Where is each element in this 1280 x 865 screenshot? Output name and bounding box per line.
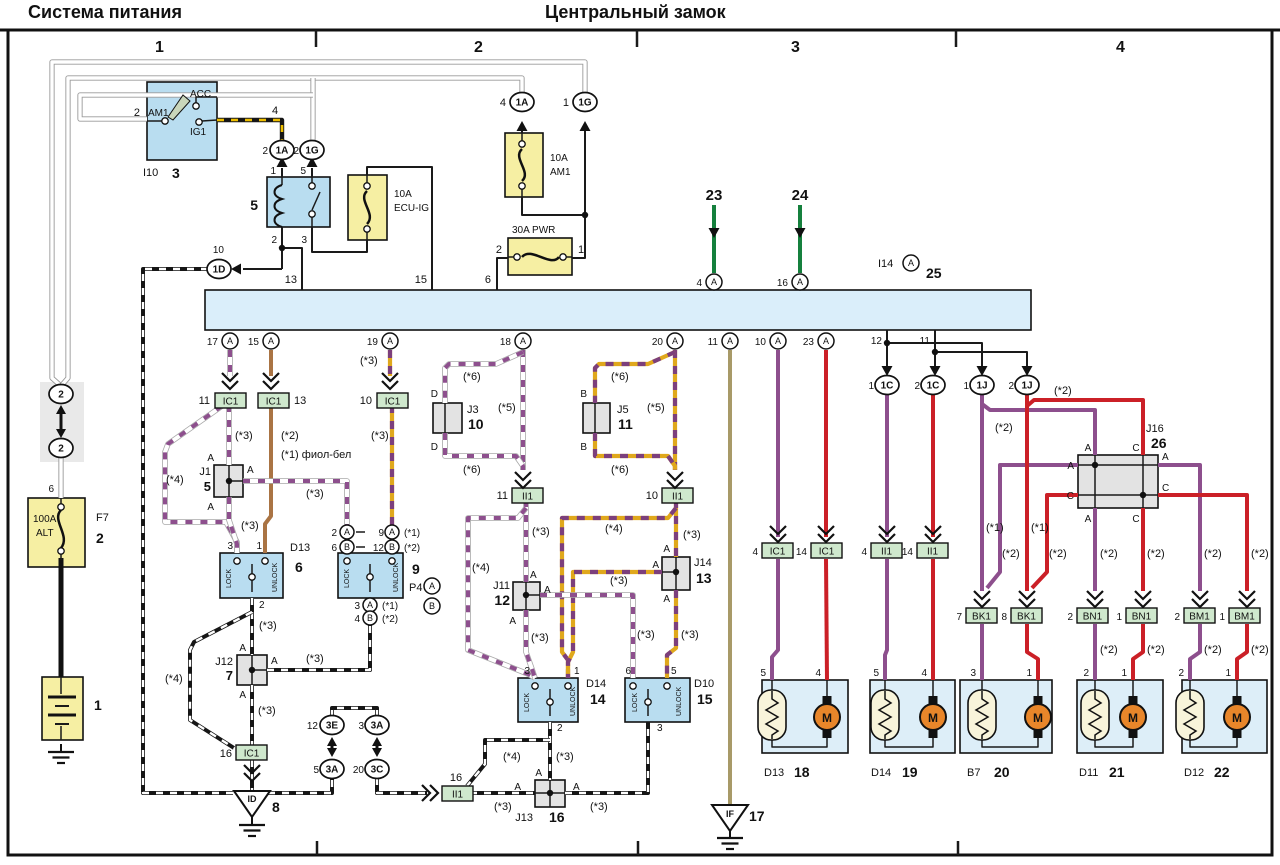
terminal [532, 683, 538, 689]
diagram-label: J5 [617, 404, 629, 416]
chevron-mark [974, 591, 990, 599]
diagram-label: (*3) [532, 526, 550, 538]
diagram-label: (*2) [1147, 548, 1165, 560]
diagram-label: 18 [500, 337, 512, 348]
terminal [364, 226, 370, 232]
terminal [249, 574, 255, 580]
diagram-label: 20 [652, 337, 664, 348]
diagram-label: 1 [1026, 668, 1032, 679]
diagram-label: 13 [696, 570, 712, 586]
oval-connector-label: 3A [326, 765, 339, 776]
circled-letter-label: A [908, 258, 914, 268]
diagram-label: A [207, 453, 214, 464]
wiring-diagram: IC1IC1IC1II1II1IC1II1IC1IC1II1II1BK1BK1B… [0, 0, 1280, 865]
diagram-label: (*2) [382, 614, 398, 625]
diagram-label: 2 [271, 235, 277, 246]
diagram-label: (*2) [1054, 385, 1072, 397]
chevron-mark [667, 472, 683, 480]
diagram-label: 5 [671, 666, 677, 677]
diagram-label: D11 [1079, 767, 1098, 779]
diagram-label: (*2) [281, 430, 299, 442]
diagram-label: (*3) [590, 801, 608, 813]
connector-label: BM1 [1234, 612, 1255, 623]
wire-wp [243, 481, 347, 524]
diagram-label: 11 [199, 395, 210, 407]
diagram-label: P4 [409, 582, 422, 594]
circled-letter-label: A [520, 336, 526, 346]
diagram-label: 4 [272, 105, 278, 117]
terminal [547, 699, 553, 705]
diagram-label: B7 [967, 767, 980, 779]
wire-wp [243, 481, 347, 524]
diagram-label: 4 [815, 668, 821, 679]
circled-letter-label: A [227, 336, 233, 346]
terminal [196, 119, 202, 125]
oval-connector-label: 3E [326, 721, 339, 732]
diagram-label: 5 [250, 197, 258, 213]
circled-letter-label: A [344, 527, 350, 537]
diagram-label: (*1) [382, 601, 398, 612]
motor-label: M [1128, 711, 1138, 725]
arrowhead [517, 121, 528, 131]
diagram-label: 1 [574, 666, 580, 677]
diagram-label: 3 [354, 601, 360, 612]
diagram-label: (*4) [605, 523, 623, 535]
junction-J5 [583, 403, 610, 433]
wire-bw [377, 778, 427, 793]
arrowhead [930, 366, 941, 376]
diagram-label: 23 [803, 337, 815, 348]
chevron-mark [1192, 591, 1208, 599]
circled-letter-label: A [389, 527, 395, 537]
diagram-label: (*2) [404, 543, 420, 554]
diagram-label: 3 [970, 668, 976, 679]
connector-label: BK1 [1017, 612, 1036, 623]
diagram-label: A [1067, 461, 1074, 472]
terminal [58, 548, 64, 554]
diagram-label: 11 [618, 416, 633, 432]
circled-letter-label: A [429, 581, 435, 591]
circled-letter-label: B [389, 542, 395, 552]
junction-dot [673, 569, 679, 575]
diagram-label: 1 [868, 381, 874, 392]
wire-wp [445, 433, 523, 470]
diagram-label: 3 [227, 541, 233, 552]
diagram-label: A [544, 585, 551, 596]
diagram-label: 21 [1109, 764, 1125, 780]
diagram-label: (*5) [498, 402, 516, 414]
diagram-label: 15 [415, 274, 427, 286]
diagram-label: F7 [96, 512, 109, 524]
diagram-label: 4 [696, 278, 702, 289]
diagram-label: 7 [226, 668, 233, 683]
junction-J3 [433, 403, 462, 433]
diagram-label: A [271, 656, 278, 667]
diagram-label: 16 [777, 278, 789, 289]
diagram-label: D12 [1184, 767, 1204, 779]
diagram-label: D14 [586, 678, 606, 690]
junction-dot [547, 790, 553, 796]
diagram-label: 2 [293, 146, 299, 157]
diagram-label: D13 [290, 542, 310, 554]
oval-connector-label: 1D [213, 265, 226, 276]
diagram-label: 10 [360, 395, 372, 407]
diagram-label: LOCK [524, 693, 531, 712]
diagram-label: 1 [256, 541, 262, 552]
diagram-label: C [1162, 483, 1169, 494]
diagram-label: A [652, 560, 659, 571]
terminal [309, 183, 315, 189]
diagram-label: 12 [871, 336, 883, 347]
diagram-label: (*2) [1100, 548, 1118, 560]
diagram-label: 1 [1121, 668, 1127, 679]
wire-bw [467, 740, 550, 786]
wire-py [568, 572, 662, 678]
diagram-label: D14 [871, 767, 891, 779]
oval-connector-label: 1J [1021, 381, 1032, 392]
diagram-label: 11 [920, 336, 931, 347]
wire-red [826, 559, 827, 680]
diagram-label: 30A PWR [512, 225, 555, 236]
diagram-label: 5 [760, 668, 766, 679]
oval-connector-label: 1G [305, 146, 319, 157]
diagram-label: 12 [307, 721, 319, 732]
arrowhead [795, 228, 806, 238]
circled-letter-label: A [797, 277, 803, 287]
diagram-label: 8 [1001, 612, 1007, 623]
connector-label: BN1 [1083, 612, 1103, 623]
diagram-label: 9 [412, 561, 420, 577]
diagram-label: 3 [524, 666, 530, 677]
diagram-label: 16 [549, 809, 565, 825]
diagram-label: 8 [272, 799, 280, 815]
chevron-mark [515, 472, 531, 480]
diagram-label: (*4) [165, 673, 183, 685]
diagram-label: A [530, 570, 537, 581]
wire-wp [445, 433, 523, 470]
connector-label: IC1 [819, 547, 835, 558]
wire-bw [467, 740, 550, 786]
diagram-label: A [239, 690, 246, 701]
arrowhead [709, 228, 720, 238]
double-arrow-up [372, 737, 382, 746]
diagram-label: A [247, 465, 254, 476]
diagram-label: A [1085, 443, 1092, 454]
diagram-label: LOCK [226, 569, 233, 588]
diagram-label: 10 [755, 337, 767, 348]
motor-label: M [1033, 711, 1043, 725]
diagram-label: (*1) [986, 522, 1004, 534]
terminal [367, 574, 373, 580]
terminal [630, 683, 636, 689]
diagram-label: C [1067, 491, 1074, 502]
diagram-label: 2 [1067, 612, 1073, 623]
diagram-label: A [207, 502, 214, 513]
diagram-page: Система питания Центральный замок IC1IC1… [0, 0, 1280, 865]
diagram-label: 6 [625, 666, 631, 677]
wire-red [1032, 495, 1078, 588]
diagram-label: 2 [1083, 668, 1089, 679]
wire-bk15 [202, 120, 217, 121]
diagram-label: 4 [354, 614, 360, 625]
diagram-label: A [1162, 452, 1169, 463]
diagram-label: 13 [285, 274, 297, 286]
diagram-label: A [535, 768, 542, 779]
oval-connector-label: 1G [578, 98, 592, 109]
diagram-label: IF [726, 809, 735, 819]
chevron-mark [1239, 591, 1255, 599]
diagram-label: 2 [1008, 381, 1014, 392]
wire-by [217, 120, 282, 142]
diagram-label: D [431, 389, 438, 400]
terminal [344, 558, 350, 564]
diagram-label: J3 [467, 404, 479, 416]
oval-connector-label: 1C [927, 381, 940, 392]
diagram-label: 10 [213, 245, 225, 256]
diagram-label: 7 [956, 612, 962, 623]
diagram-label: (*2) [1204, 644, 1222, 656]
diagram-label: 2 [96, 530, 104, 546]
connector-label: IC1 [266, 397, 282, 408]
diagram-label: (*4) [166, 474, 184, 486]
diagram-label: 17 [207, 337, 219, 348]
connector-label: II1 [881, 547, 893, 558]
junction-dot [932, 349, 938, 355]
terminal [664, 683, 670, 689]
diagram-label: 2 [134, 107, 140, 119]
diagram-label: 19 [902, 764, 918, 780]
double-arrow-up [327, 737, 337, 746]
oval-connector-label: 1A [516, 98, 529, 109]
oval-connector-label: 1C [881, 381, 894, 392]
diagram-label: UNLOCK [676, 686, 683, 716]
diagram-label: UNLOCK [272, 562, 279, 592]
diagram-label: 2 [557, 723, 563, 734]
diagram-label: 26 [1151, 435, 1167, 451]
diagram-label: (*1) фиол-бел [281, 449, 351, 461]
connector-label: BK1 [972, 612, 991, 623]
wire-pur [1190, 624, 1200, 680]
connector-label: IC1 [385, 397, 401, 408]
battery-1 [42, 677, 83, 740]
oval-connector-label: 3A [371, 721, 384, 732]
wire-bw [268, 778, 332, 793]
diagram-label: (*3) [610, 575, 628, 587]
wire-wh [61, 78, 522, 386]
connector-label: II1 [452, 790, 464, 801]
wire-bw [332, 708, 377, 717]
diagram-label: A [239, 643, 246, 654]
diagram-label: 2 [259, 600, 265, 611]
diagram-label: 23 [706, 187, 723, 204]
diagram-label: (*3) [683, 529, 701, 541]
oval-connector-label: 2 [58, 444, 64, 455]
diagram-label: (*3) [637, 629, 655, 641]
terminal [514, 254, 520, 260]
diagram-label: UNLOCK [393, 562, 400, 592]
wire-py [595, 433, 675, 470]
diagram-label: (*3) [360, 355, 378, 367]
diagram-label: 10A [550, 153, 568, 164]
arrowhead [231, 264, 241, 275]
wire-bk [497, 258, 508, 290]
diagram-label: 4 [752, 547, 758, 558]
diagram-label: 15 [248, 337, 260, 348]
diagram-label: LOCK [632, 693, 639, 712]
diagram-label: (*6) [463, 464, 481, 476]
diagram-label: 20 [994, 764, 1010, 780]
circled-letter-label: A [727, 336, 733, 346]
junction-dot [523, 592, 529, 598]
diagram-label: 5 [300, 166, 306, 177]
diagram-label: UNLOCK [570, 686, 577, 716]
diagram-label: (*6) [611, 464, 629, 476]
connector-label: IC1 [223, 397, 239, 408]
diagram-label: 9 [378, 528, 384, 539]
diagram-label: 3 [791, 39, 800, 56]
diagram-label: ID [248, 794, 258, 804]
wire-bk [572, 123, 585, 258]
diagram-label: (*2) [1049, 548, 1067, 560]
circled-letter-label: A [268, 336, 274, 346]
terminal [645, 699, 651, 705]
diagram-label: 19 [367, 337, 379, 348]
diagram-label: D10 [694, 678, 714, 690]
diagram-label: (*6) [611, 371, 629, 383]
diagram-label: 22 [1214, 764, 1230, 780]
motor-label: M [822, 711, 832, 725]
wire-bw [377, 778, 427, 793]
diagram-label: A [1085, 514, 1092, 525]
diagram-label: 10 [646, 490, 658, 502]
diagram-label: AM1 [148, 108, 169, 119]
diagram-label: (*2) [1147, 644, 1165, 656]
circled-letter-label: A [367, 600, 373, 610]
diagram-label: 10 [468, 416, 484, 432]
motor-cap [823, 730, 832, 738]
terminal [234, 558, 240, 564]
junction-dot [1140, 492, 1146, 498]
diagram-label: 12 [373, 543, 385, 554]
diagram-label: 6 [485, 274, 491, 286]
diagram-label: J14 [694, 557, 712, 569]
diagram-label: (*3) [241, 520, 259, 532]
motor-cap [1129, 696, 1138, 704]
diagram-label: AM1 [550, 167, 571, 178]
diagram-label: 2 [1174, 612, 1180, 623]
diagram-label: (*2) [995, 422, 1013, 434]
wire-py [595, 352, 675, 403]
ecu-bus [205, 290, 1031, 330]
diagram-label: J11 [493, 580, 510, 592]
diagram-label: 25 [926, 265, 942, 281]
diagram-label: 3 [358, 721, 364, 732]
diagram-label: J1 [199, 466, 211, 478]
diagram-label: B [580, 442, 587, 453]
circled-letter-label: A [775, 336, 781, 346]
connector-label: IC1 [244, 749, 260, 760]
diagram-label: 24 [792, 187, 809, 204]
diagram-label: 2 [1178, 668, 1184, 679]
circled-letter-label: A [672, 336, 678, 346]
chevron-mark [1087, 591, 1103, 599]
diagram-label: 15 [697, 691, 713, 707]
wire-pur [772, 559, 778, 680]
wire-wp [243, 481, 347, 524]
diagram-label: (*1) [404, 528, 420, 539]
diagram-label: IG1 [190, 127, 207, 138]
diagram-label: 2 [914, 381, 920, 392]
diagram-label: 1 [563, 97, 569, 109]
diagram-label: 1 [155, 39, 164, 56]
diagram-label: J12 [215, 656, 233, 668]
diagram-label: 5 [204, 479, 211, 494]
wire-py [568, 572, 662, 678]
diagram-label: LOCK [344, 569, 351, 588]
diagram-label: 6 [331, 543, 337, 554]
circled-letter-label: B [344, 542, 350, 552]
wire-wp [540, 595, 633, 678]
diagram-label: 1 [963, 381, 969, 392]
diagram-label: 1 [270, 166, 276, 177]
terminal [193, 103, 199, 109]
connector-label: II1 [672, 492, 684, 503]
motor-cap [1233, 696, 1242, 704]
diagram-label: J16 [1146, 423, 1164, 435]
diagram-label: ALT [36, 528, 54, 539]
diagram-label: 13 [294, 395, 306, 407]
diagram-label: 100A [33, 514, 57, 525]
diagram-label: 3 [301, 235, 307, 246]
motor-cap [1233, 730, 1242, 738]
connector-label: BN1 [1132, 612, 1152, 623]
diagram-label: D [431, 442, 438, 453]
circled-letter-label: B [429, 601, 435, 611]
diagram-label: 2 [262, 146, 268, 157]
junction-dot [1092, 462, 1098, 468]
wire-pur [885, 559, 887, 680]
connector-label: IC1 [770, 547, 786, 558]
diagram-label: (*5) [647, 402, 665, 414]
diagram-label: 3 [172, 165, 180, 181]
motor-cap [1034, 730, 1043, 738]
diagram-label: 18 [794, 764, 810, 780]
diagram-label: 17 [749, 808, 765, 824]
connector-label: II1 [927, 547, 939, 558]
terminal [309, 211, 315, 217]
diagram-label: 14 [902, 547, 914, 558]
junction-dot [226, 478, 232, 484]
diagram-label: 10A [394, 189, 412, 200]
diagram-label: (*3) [306, 653, 324, 665]
diagram-label: 1 [578, 244, 584, 256]
circled-letter-label: B [367, 613, 373, 623]
diagram-label: (*3) [306, 488, 324, 500]
motor-label: M [1232, 711, 1242, 725]
wire-wp [540, 595, 633, 678]
circled-letter-label: A [387, 336, 393, 346]
chevron-mark [1019, 591, 1035, 599]
junction-dot [582, 212, 588, 218]
diagram-label: A [663, 594, 670, 605]
wire-bk [522, 197, 585, 215]
diagram-label: 2 [496, 244, 502, 256]
motor-cap [929, 696, 938, 704]
diagram-label: D13 [764, 767, 784, 779]
oval-connector-label: 1A [276, 146, 289, 157]
diagram-label: I10 [143, 167, 158, 179]
arrowhead [1022, 366, 1033, 376]
